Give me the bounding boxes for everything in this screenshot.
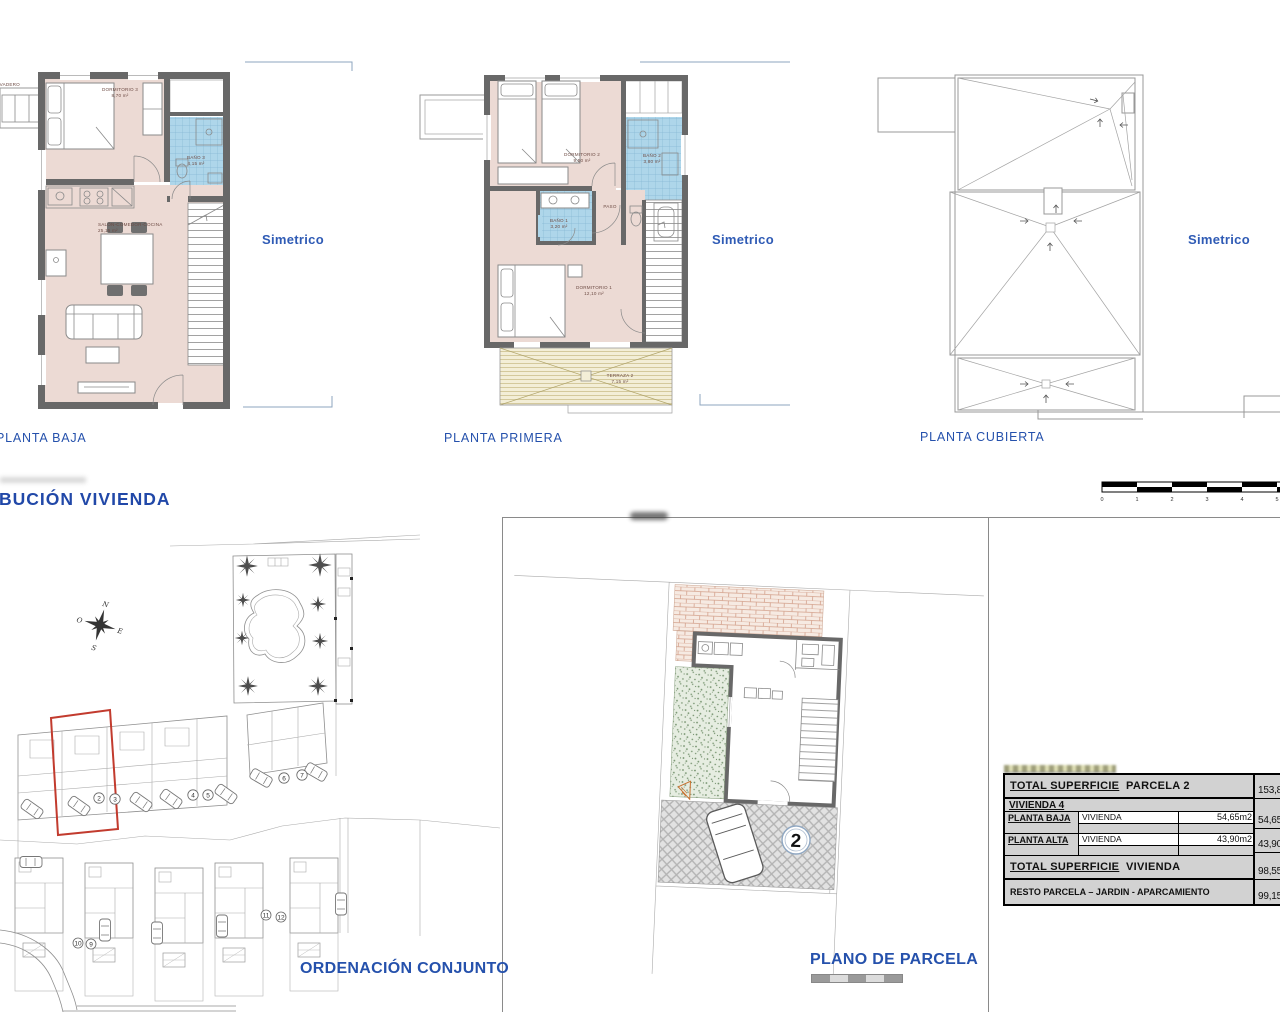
room-label: BAÑO 1 (550, 217, 568, 223)
compass-rose: N E S O (70, 595, 130, 658)
bath1-fixtures (541, 193, 589, 208)
note-simetrico-2: Simetrico (712, 232, 774, 247)
room-label: DORMITORIO 3 (102, 87, 138, 92)
title-ordenacion: ORDENACIÓN CONJUNTO (300, 960, 509, 978)
unit-num: 3 (113, 797, 117, 804)
areas-table: TOTAL SUPERFICIE PARCELA 2 VIVIENDA 4 PL… (1003, 773, 1257, 906)
room-label: PASO (603, 204, 616, 209)
total-pb-value: 54,65m2 (1255, 799, 1280, 829)
total-parcela-value: 153,80m2 (1255, 775, 1280, 799)
scale-tick: 3 (1205, 497, 1208, 503)
row-total-parcela: TOTAL SUPERFICIE PARCELA 2 (1010, 780, 1190, 792)
unit-num: 2 (97, 796, 101, 803)
parcel-number-badge: 2 (781, 825, 810, 854)
room-area: 25,15 m² (98, 228, 118, 233)
mirror-line-bottom (243, 396, 332, 407)
note-simetrico-3: Simetrico (1188, 232, 1250, 247)
room-paso (592, 190, 645, 245)
table-caption-blurred (1004, 765, 1116, 773)
pool-garden (233, 553, 353, 776)
title-distribucion: BUCIÓN VIVIENDA (0, 489, 171, 510)
annex-roof (420, 95, 490, 139)
plan-planta-cubierta (860, 55, 1280, 450)
parcel-plan: 2 (502, 518, 988, 1012)
room-label: BAÑO 2 (643, 152, 661, 158)
unit-numbers: 2 3 4 5 6 7 (94, 770, 307, 804)
stairs (645, 200, 682, 342)
sofa (66, 305, 142, 339)
tv-unit (78, 382, 135, 393)
mini-scale-bar (811, 974, 903, 983)
unit-num: 7 (300, 773, 304, 780)
unit-num: 4 (191, 793, 195, 800)
faint-smudge (0, 477, 86, 483)
compass-e: E (116, 627, 124, 636)
scale-tick: 5 (1275, 497, 1278, 503)
drawing-sheet: LAVADERO (0, 0, 1280, 1024)
room-area: 12,10 m² (584, 291, 604, 296)
villas-lower-row (15, 857, 347, 1002)
bed-double (46, 83, 114, 149)
stairs (799, 698, 839, 781)
room-label: BAÑO 3 (187, 154, 205, 160)
room-label: SALÓN-COMEDOR-COCINA (98, 221, 163, 227)
unit-num: 12 (277, 915, 285, 922)
row-planta-baja-use: VIVIENDA (1079, 812, 1178, 824)
room-area: 3,80 m² (644, 159, 661, 164)
site-plan: N E S O 2 3 4 (0, 518, 502, 1012)
stairs (188, 203, 224, 365)
garden (670, 667, 730, 799)
row-vivienda4: VIVIENDA 4 (1009, 800, 1064, 811)
room-area: 3,20 m² (551, 224, 568, 229)
closet (170, 80, 224, 115)
room-area: 7,15 m² (612, 379, 629, 384)
unit-num: 9 (89, 942, 93, 949)
total-vivienda-value: 98,55m2 (1255, 853, 1280, 880)
title-plano-parcela: PLANO DE PARCELA (810, 951, 978, 969)
plan-planta-baja: LAVADERO (0, 55, 360, 450)
roof-outline (950, 75, 1143, 412)
row-planta-alta-use: VIVIENDA (1079, 834, 1178, 846)
title-planta-primera: PLANTA PRIMERA (444, 431, 563, 445)
mirror-line-bottom (700, 394, 790, 405)
zone-hatched (673, 584, 824, 636)
scale-tick: 2 (1170, 497, 1173, 503)
annex-roof (878, 78, 962, 132)
lavadero-label: LAVADERO (0, 82, 20, 87)
housing-row-upper (18, 703, 328, 820)
title-planta-baja: PLANTA BAJA (0, 431, 87, 445)
unit-num: 5 (206, 793, 210, 800)
row-planta-baja-label: PLANTA BAJA (1008, 813, 1071, 823)
compass-n: N (100, 600, 110, 610)
resto-value: 99,15m2 (1255, 880, 1280, 904)
title-planta-cubierta: PLANTA CUBIERTA (920, 430, 1045, 444)
unit-num: 6 (282, 776, 286, 783)
areas-table-totals: 153,80m2 54,65m2 43,90m2 98,55m2 99,15m2 (1253, 773, 1280, 906)
room-label: DORMITORIO 2 (564, 152, 600, 157)
closet (625, 81, 682, 113)
parcel-number: 2 (790, 831, 801, 852)
note-simetrico-1: Simetrico (262, 232, 324, 247)
row-planta-alta-value: 43,90m2 (1179, 834, 1255, 846)
room-area: 4,15 m² (188, 161, 205, 166)
coffee-table (86, 347, 119, 363)
divider-vertical-2 (988, 517, 989, 1012)
compass-o: O (76, 616, 84, 625)
room-label: DORMITORIO 1 (576, 285, 612, 290)
room-label: TERRAZA 2 (607, 373, 634, 378)
scale-bar: 0 1 2 3 4 5 (1098, 480, 1280, 506)
row-total-vivienda: TOTAL SUPERFICIE VIVIENDA (1010, 861, 1180, 873)
scale-tick: 0 (1100, 497, 1103, 503)
scale-tick: 4 (1240, 497, 1243, 503)
row-planta-alta-label: PLANTA ALTA (1008, 835, 1068, 845)
room-area: 8,70 m² (112, 93, 129, 98)
row-resto: RESTO PARCELA – JARDIN - APARCAMIENTO (1010, 887, 1210, 897)
total-pa-value: 43,90m2 (1255, 829, 1280, 853)
row-planta-baja-value: 54,65m2 (1179, 812, 1255, 824)
room-area: 9,50 m² (574, 158, 591, 163)
plan-planta-primera: DORMITORIO 2 9,50 m² BAÑO 2 3,80 m² BAÑO… (410, 55, 790, 450)
compass-s: S (90, 644, 97, 653)
scale-tick: 1 (1135, 497, 1138, 503)
unit-num: 10 (74, 941, 82, 948)
terraza (500, 348, 672, 413)
mirror-line-top (245, 62, 352, 71)
unit-num: 11 (263, 913, 270, 920)
